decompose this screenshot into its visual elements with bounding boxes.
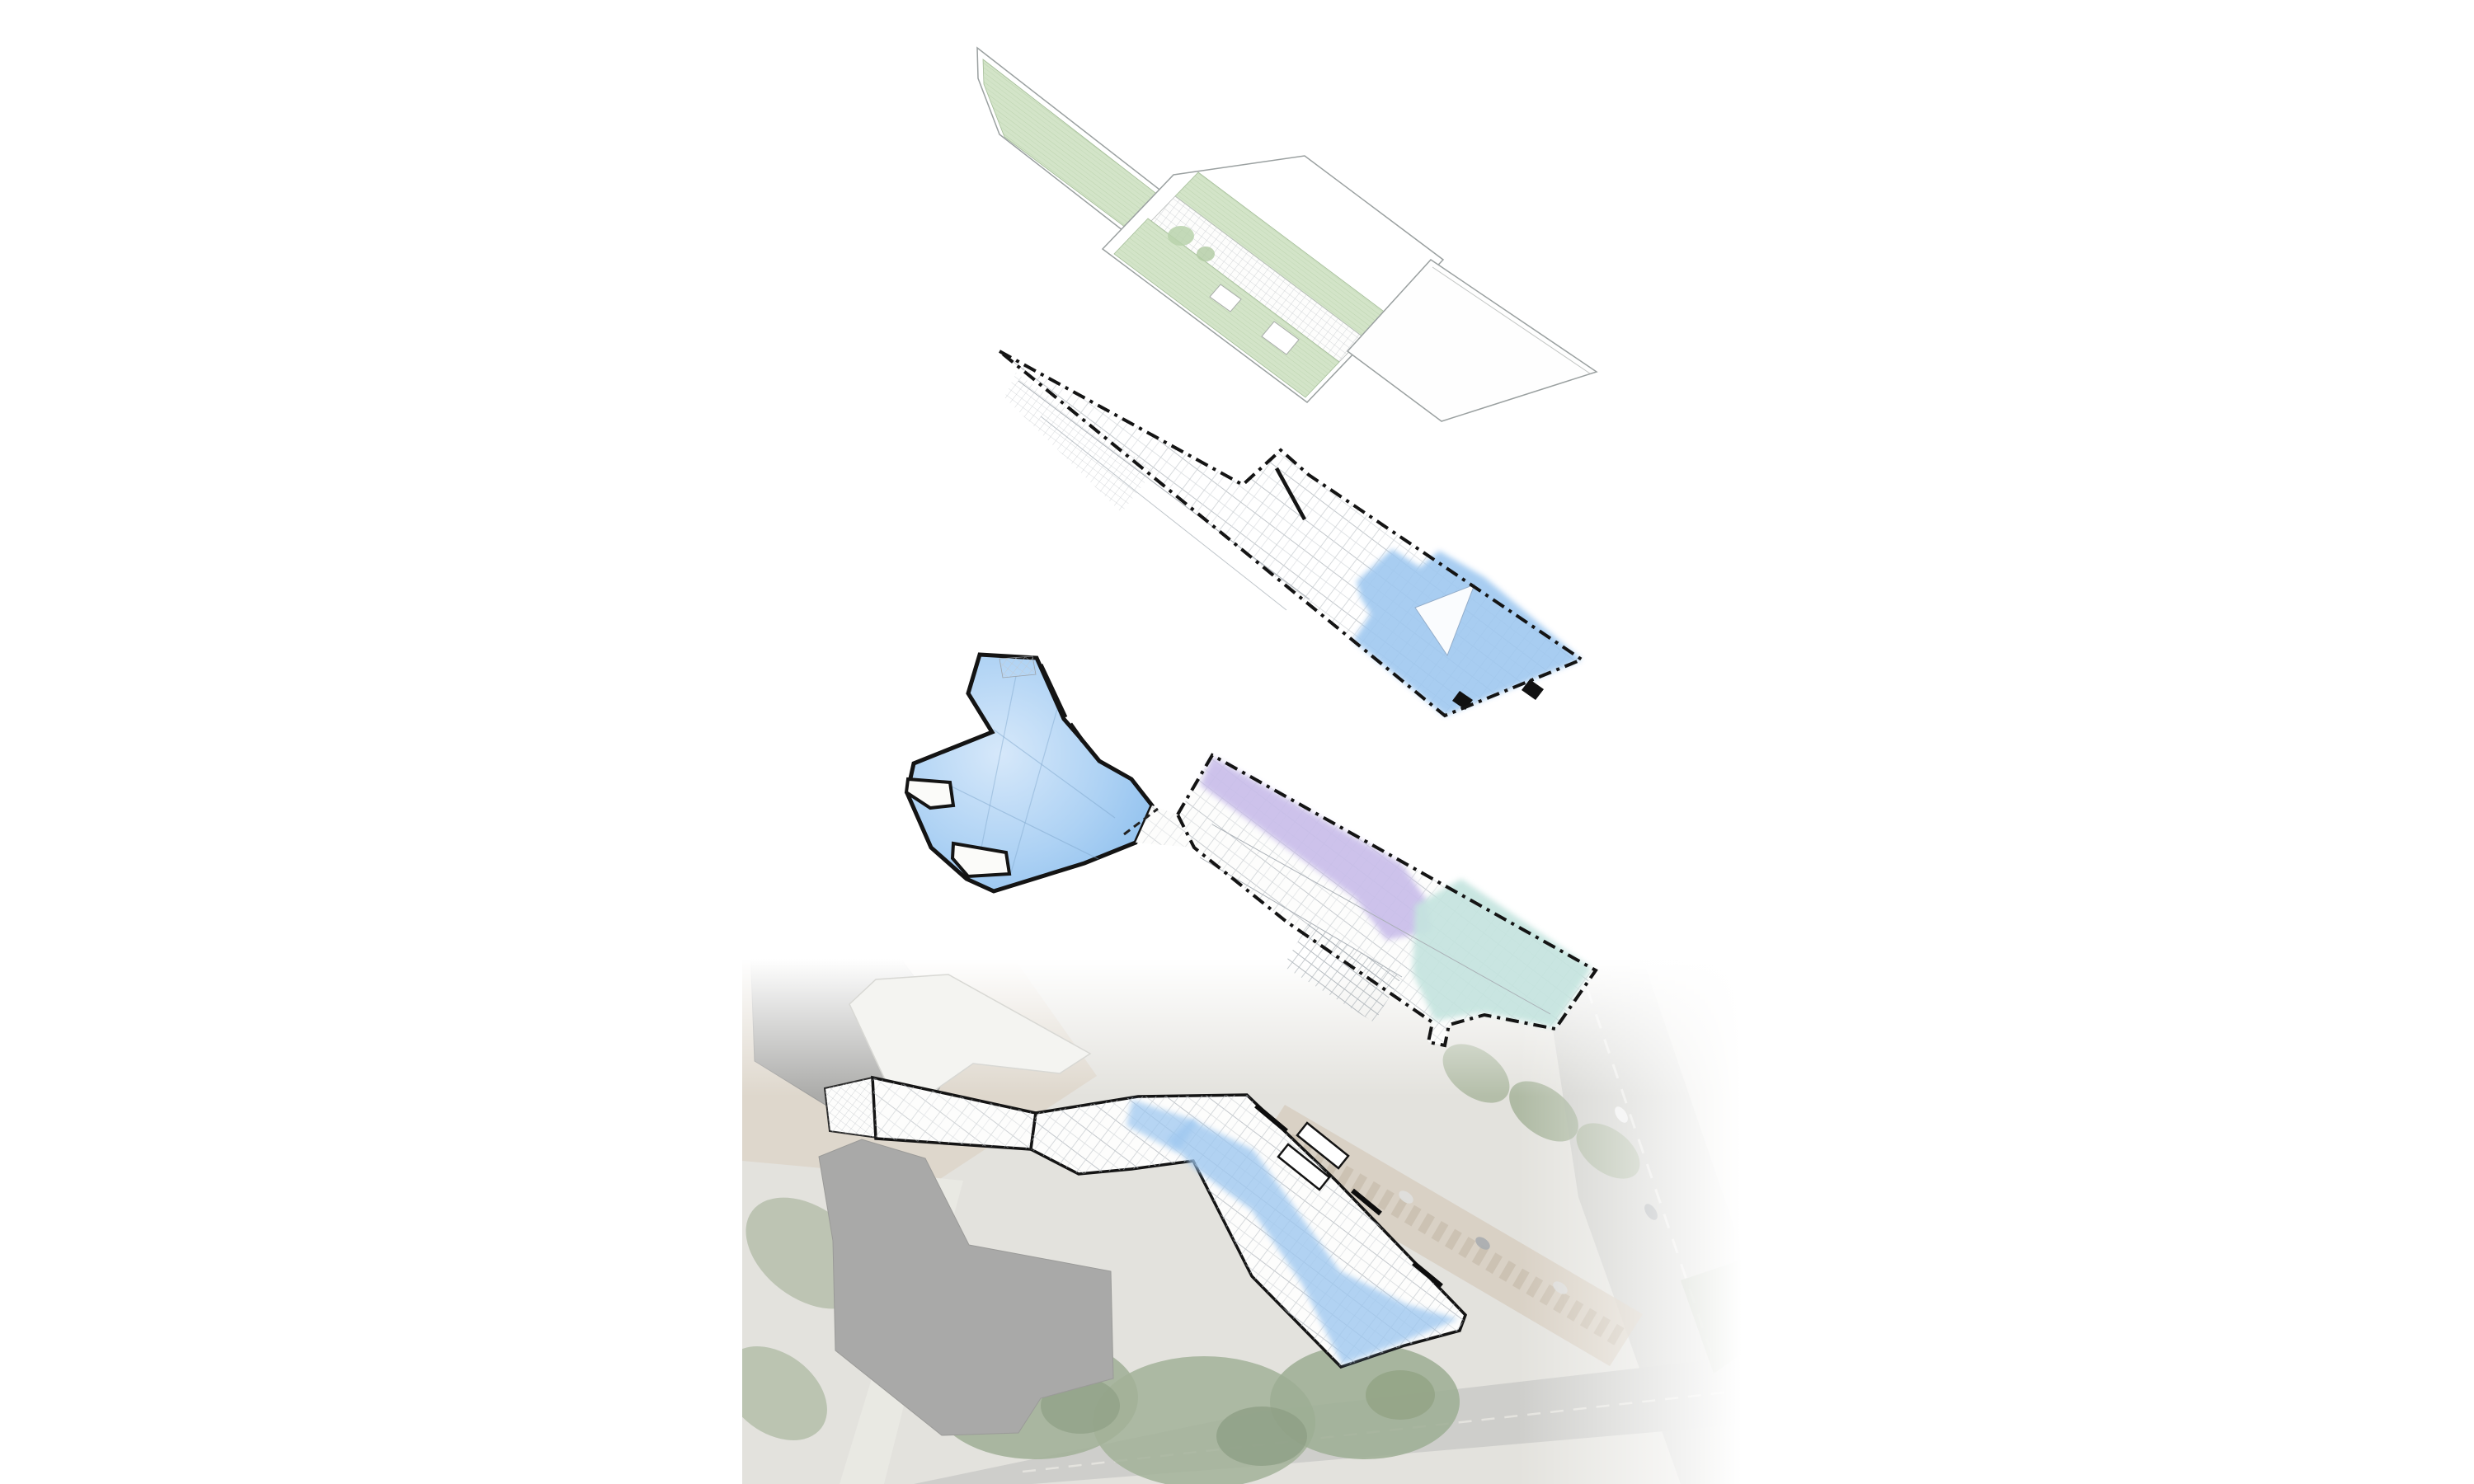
roof-tree-1 (1168, 226, 1194, 246)
exploded-axon-figure (0, 0, 2474, 1484)
link-bridge-hatch (825, 1078, 877, 1138)
photo-fade-right (1517, 959, 1742, 1484)
diagram-canvas (0, 0, 2474, 1484)
lobby-stair-hatch (999, 656, 1036, 678)
site-plan-layer (705, 934, 1742, 1484)
roof-tree-2 (1197, 247, 1215, 261)
roof-plan-layer (977, 48, 1597, 421)
upper-level-layer (999, 351, 1582, 716)
upper-blue-highlight (1353, 549, 1582, 716)
hall-teal-highlight (1413, 879, 1592, 1027)
lobby-highlight (907, 655, 1152, 891)
